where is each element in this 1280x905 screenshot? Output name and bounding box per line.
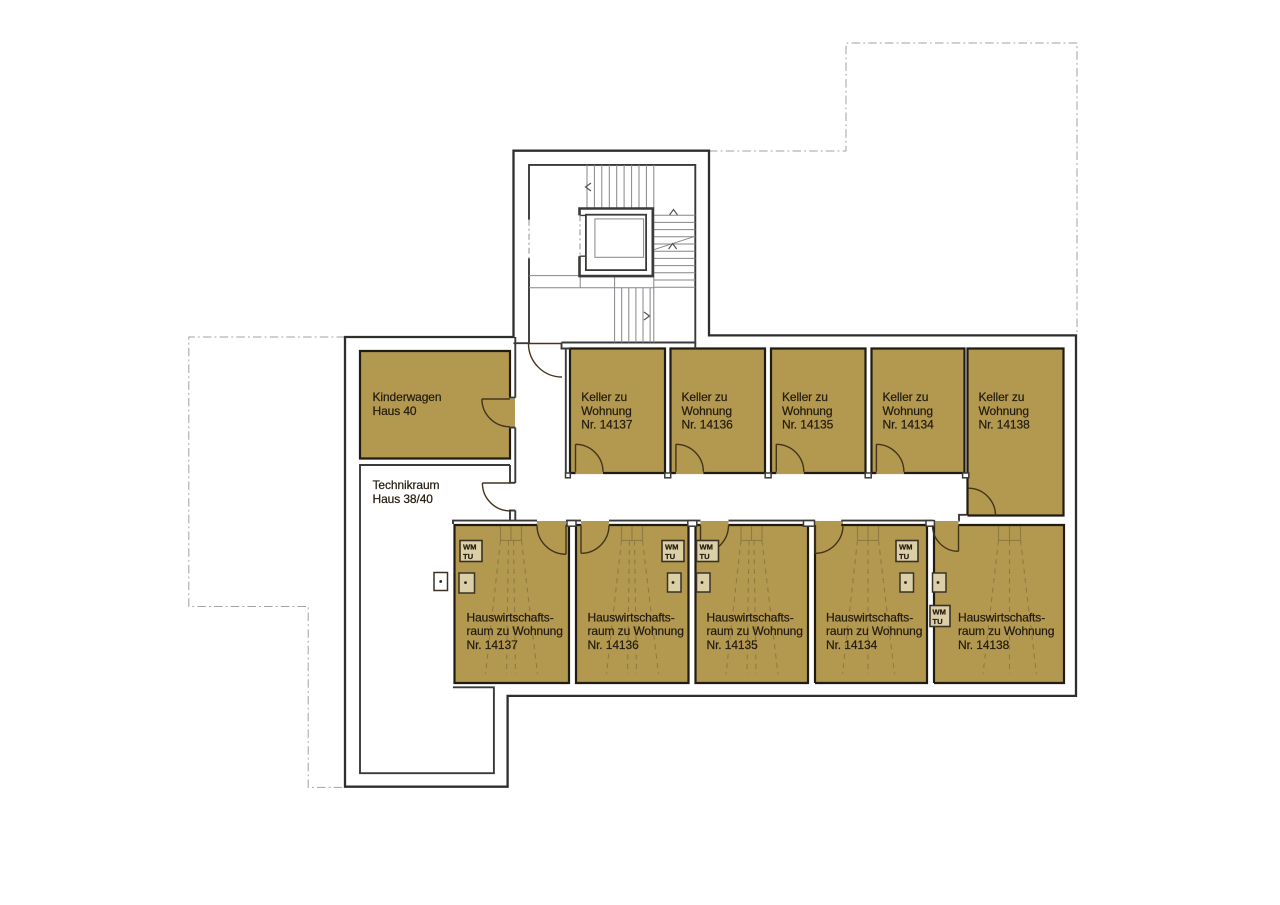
svg-text:TU: TU <box>700 552 711 561</box>
svg-text:Nr. 14134: Nr. 14134 <box>826 638 878 652</box>
svg-text:Nr. 14135: Nr. 14135 <box>707 638 759 652</box>
svg-text:Keller zu: Keller zu <box>581 390 627 404</box>
svg-text:Haus 38/40: Haus 38/40 <box>373 492 434 506</box>
svg-text:Kinderwagen: Kinderwagen <box>373 390 442 404</box>
svg-text:Hauswirtschafts-: Hauswirtschafts- <box>826 610 913 624</box>
svg-text:TU: TU <box>899 552 910 561</box>
svg-text:WM: WM <box>700 543 714 552</box>
svg-text:Wohnung: Wohnung <box>979 404 1029 418</box>
svg-text:WM: WM <box>463 543 477 552</box>
svg-text:raum zu Wohnung: raum zu Wohnung <box>588 624 684 638</box>
svg-text:WM: WM <box>665 543 679 552</box>
svg-text:Technikraum: Technikraum <box>373 478 440 492</box>
svg-text:Nr. 14136: Nr. 14136 <box>588 638 640 652</box>
svg-text:Nr. 14136: Nr. 14136 <box>682 418 734 432</box>
svg-text:Hauswirtschafts-: Hauswirtschafts- <box>467 610 554 624</box>
svg-text:Nr. 14135: Nr. 14135 <box>782 418 834 432</box>
svg-text:Wohnung: Wohnung <box>581 404 631 418</box>
svg-text:Keller zu: Keller zu <box>883 390 929 404</box>
svg-text:Keller zu: Keller zu <box>682 390 728 404</box>
svg-text:WM: WM <box>933 608 947 617</box>
svg-text:Hauswirtschafts-: Hauswirtschafts- <box>588 610 675 624</box>
svg-text:Nr. 14138: Nr. 14138 <box>958 638 1010 652</box>
svg-text:raum zu Wohnung: raum zu Wohnung <box>707 624 803 638</box>
svg-text:Wohnung: Wohnung <box>883 404 933 418</box>
svg-text:Nr. 14137: Nr. 14137 <box>467 638 519 652</box>
svg-text:Hauswirtschafts-: Hauswirtschafts- <box>958 610 1045 624</box>
svg-text:Keller zu: Keller zu <box>782 390 828 404</box>
svg-text:Wohnung: Wohnung <box>782 404 832 418</box>
svg-text:TU: TU <box>463 552 474 561</box>
svg-text:raum zu Wohnung: raum zu Wohnung <box>467 624 563 638</box>
svg-text:raum zu Wohnung: raum zu Wohnung <box>826 624 922 638</box>
svg-text:Haus 40: Haus 40 <box>373 404 417 418</box>
svg-text:Nr. 14138: Nr. 14138 <box>979 418 1031 432</box>
svg-text:Nr. 14134: Nr. 14134 <box>883 418 935 432</box>
svg-text:raum zu Wohnung: raum zu Wohnung <box>958 624 1054 638</box>
svg-text:Nr. 14137: Nr. 14137 <box>581 418 633 432</box>
svg-text:Hauswirtschafts-: Hauswirtschafts- <box>707 610 794 624</box>
svg-text:WM: WM <box>899 543 913 552</box>
svg-text:TU: TU <box>665 552 676 561</box>
svg-text:Keller zu: Keller zu <box>979 390 1025 404</box>
svg-text:TU: TU <box>933 617 944 626</box>
svg-text:Wohnung: Wohnung <box>682 404 732 418</box>
